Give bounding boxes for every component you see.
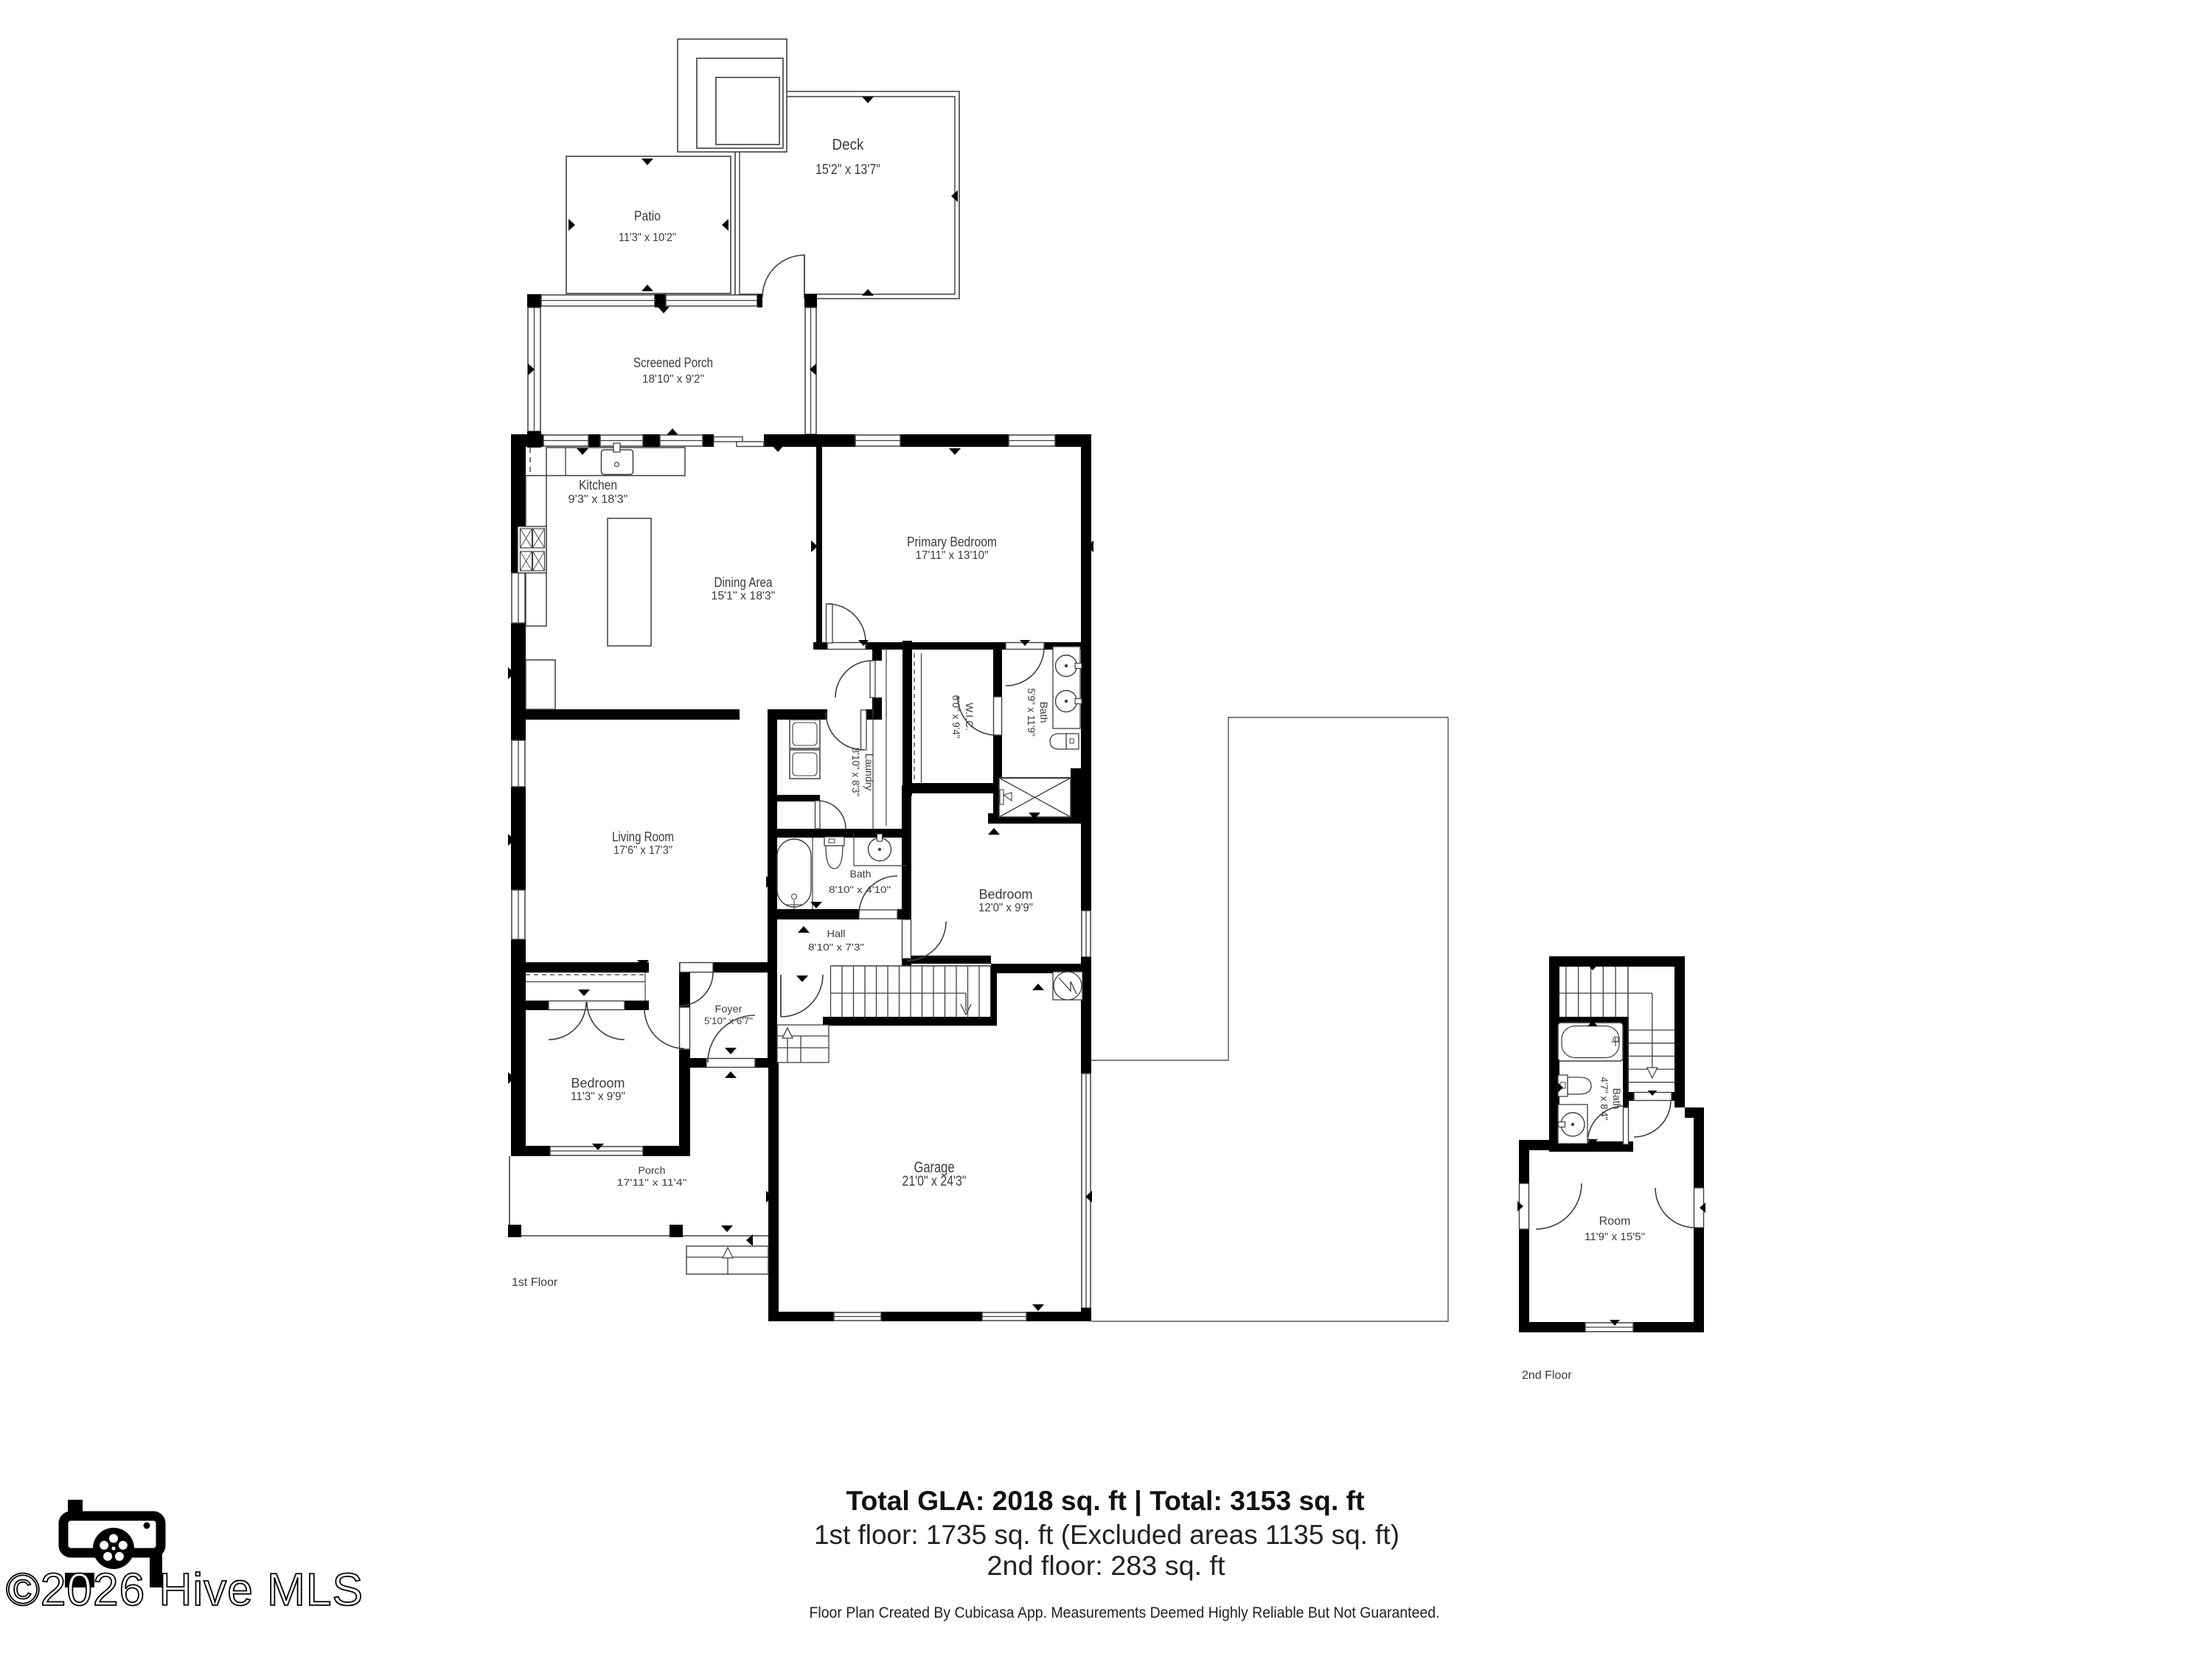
svg-text:Bath: Bath bbox=[1038, 702, 1050, 723]
svg-text:Total GLA: 2018 sq. ft | Total: Total GLA: 2018 sq. ft | Total: 3153 sq.… bbox=[846, 1486, 1365, 1517]
svg-text:Kitchen: Kitchen bbox=[579, 478, 617, 493]
svg-text:11'9" x 15'5": 11'9" x 15'5" bbox=[1585, 1231, 1645, 1243]
svg-text:15'1" x 18'3": 15'1" x 18'3" bbox=[712, 590, 776, 602]
svg-text:Dining Area: Dining Area bbox=[714, 575, 773, 590]
svg-text:6'0" x 9'4": 6'0" x 9'4" bbox=[950, 695, 961, 738]
svg-text:Bedroom: Bedroom bbox=[979, 887, 1033, 902]
svg-text:2nd floor: 283 sq. ft: 2nd floor: 283 sq. ft bbox=[987, 1551, 1226, 1581]
svg-text:1st floor: 1735 sq. ft (Exclud: 1st floor: 1735 sq. ft (Excluded areas 1… bbox=[814, 1520, 1399, 1550]
svg-text:8'10" x 7'3": 8'10" x 7'3" bbox=[808, 942, 864, 953]
svg-text:5'10" x 6'7": 5'10" x 6'7" bbox=[704, 1015, 753, 1026]
svg-text:Bath: Bath bbox=[1611, 1088, 1623, 1110]
svg-text:Deck: Deck bbox=[832, 136, 864, 153]
svg-text:4'7" x 8'4": 4'7" x 8'4" bbox=[1599, 1077, 1610, 1120]
svg-text:W.I.C.: W.I.C. bbox=[964, 703, 975, 731]
svg-text:Living Room: Living Room bbox=[612, 829, 674, 844]
svg-text:Patio: Patio bbox=[634, 209, 661, 223]
svg-text:Bedroom: Bedroom bbox=[571, 1076, 625, 1091]
svg-text:17'6" x 17'3": 17'6" x 17'3" bbox=[613, 844, 672, 857]
svg-text:Laundry: Laundry bbox=[863, 754, 875, 791]
svg-text:11'3" x 9'9": 11'3" x 9'9" bbox=[571, 1091, 625, 1103]
svg-text:©2026 Hive MLS: ©2026 Hive MLS bbox=[6, 1565, 364, 1615]
svg-text:Room: Room bbox=[1599, 1215, 1631, 1228]
svg-text:Foyer: Foyer bbox=[715, 1003, 742, 1015]
svg-text:17'11" x 13'10": 17'11" x 13'10" bbox=[916, 549, 989, 562]
svg-text:Primary Bedroom: Primary Bedroom bbox=[907, 535, 997, 549]
svg-text:Floor Plan Created By Cubicasa: Floor Plan Created By Cubicasa App. Meas… bbox=[810, 1604, 1440, 1621]
svg-text:15'2" x 13'7": 15'2" x 13'7" bbox=[815, 162, 880, 178]
svg-text:Hall: Hall bbox=[827, 928, 846, 939]
svg-text:8'10" x 8'3": 8'10" x 8'3" bbox=[850, 748, 861, 797]
svg-text:1st Floor: 1st Floor bbox=[512, 1276, 558, 1289]
svg-text:18'10" x 9'2": 18'10" x 9'2" bbox=[642, 373, 704, 386]
svg-text:21'0" x 24'3": 21'0" x 24'3" bbox=[902, 1174, 967, 1189]
svg-text:Porch: Porch bbox=[639, 1164, 666, 1176]
svg-text:5'9" x 11'9": 5'9" x 11'9" bbox=[1026, 688, 1037, 737]
svg-text:12'0" x 9'9": 12'0" x 9'9" bbox=[978, 902, 1033, 914]
svg-text:11'3" x 10'2": 11'3" x 10'2" bbox=[619, 232, 676, 244]
svg-text:Screened Porch: Screened Porch bbox=[633, 355, 713, 370]
svg-text:9'3" x 18'3": 9'3" x 18'3" bbox=[568, 493, 628, 506]
svg-text:Bath: Bath bbox=[850, 868, 872, 880]
svg-text:2nd Floor: 2nd Floor bbox=[1522, 1369, 1572, 1382]
svg-text:8'10" x 4'10": 8'10" x 4'10" bbox=[829, 884, 891, 895]
svg-text:17'11" x 11'4": 17'11" x 11'4" bbox=[617, 1177, 687, 1188]
